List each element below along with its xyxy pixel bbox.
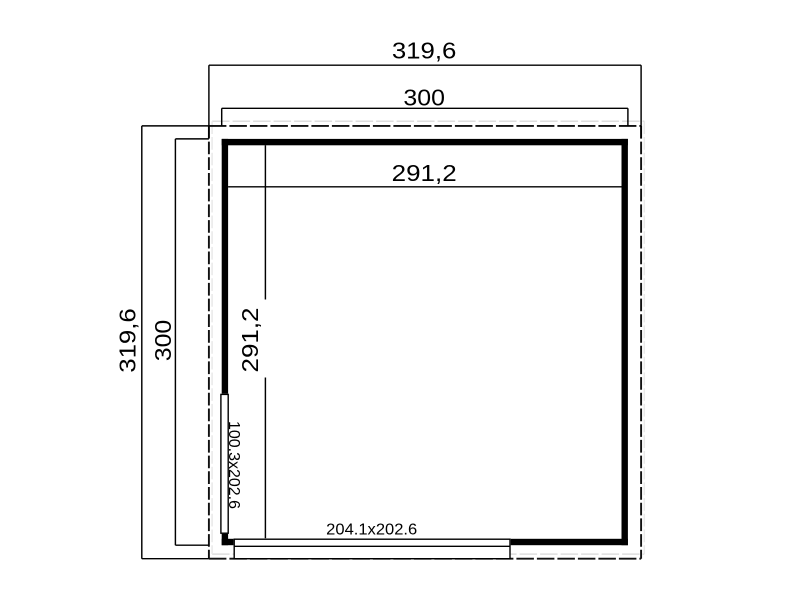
svg-text:319,6: 319,6 xyxy=(115,308,141,373)
svg-text:319,6: 319,6 xyxy=(392,38,457,64)
svg-text:100.3x202.6: 100.3x202.6 xyxy=(225,421,242,509)
svg-text:204.1x202.6: 204.1x202.6 xyxy=(326,522,417,539)
svg-text:300: 300 xyxy=(150,320,176,362)
svg-text:291,2: 291,2 xyxy=(392,160,457,186)
svg-text:291,2: 291,2 xyxy=(237,308,263,373)
svg-text:300: 300 xyxy=(403,85,445,111)
